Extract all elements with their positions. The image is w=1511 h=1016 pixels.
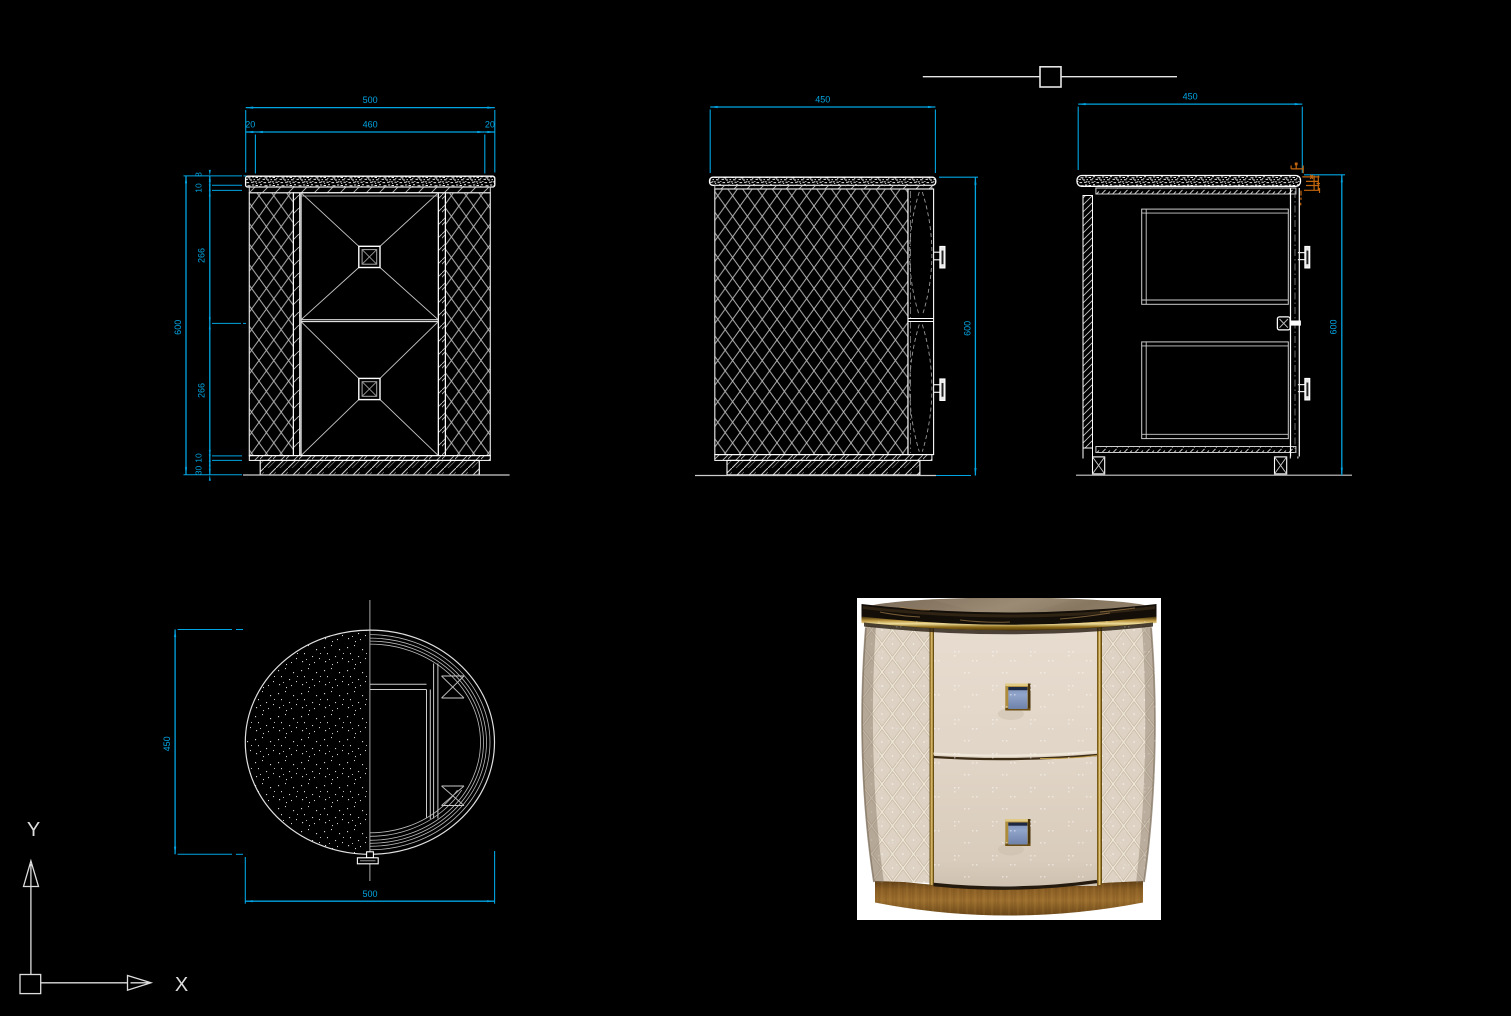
svg-text:450: 450	[162, 736, 172, 751]
svg-text:460: 460	[363, 120, 378, 130]
svg-text:266: 266	[197, 383, 207, 398]
svg-text:20: 20	[485, 120, 495, 130]
svg-text:266: 266	[197, 248, 207, 263]
svg-text:450: 450	[815, 95, 830, 105]
svg-text:20: 20	[245, 120, 255, 130]
svg-text:600: 600	[1329, 319, 1339, 334]
svg-text:500: 500	[362, 889, 377, 899]
svg-text:X: X	[175, 974, 188, 996]
svg-text:600: 600	[173, 320, 183, 335]
svg-text:10: 10	[194, 453, 204, 463]
svg-text:500: 500	[363, 95, 378, 105]
svg-text:450: 450	[1183, 92, 1198, 102]
svg-text:600: 600	[962, 321, 972, 336]
svg-text:30: 30	[194, 466, 204, 476]
svg-text:10: 10	[194, 183, 204, 193]
svg-text:Y: Y	[27, 819, 40, 841]
